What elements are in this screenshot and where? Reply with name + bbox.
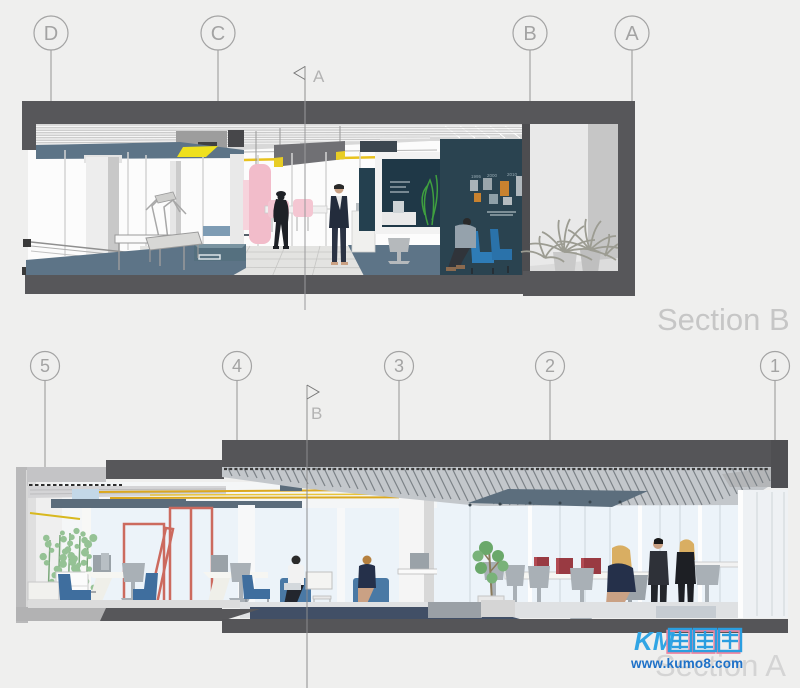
svg-text:C: C [211,23,225,45]
svg-text:www.kumo8.com: www.kumo8.com [630,656,743,671]
svg-text:3: 3 [394,356,404,376]
svg-text:D: D [44,23,58,45]
svg-text:A: A [625,23,639,45]
svg-text:1: 1 [770,356,780,376]
svg-text:A: A [313,67,325,86]
svg-text:5: 5 [40,356,50,376]
svg-text:Section B: Section B [657,302,790,337]
svg-text:2000: 2000 [487,173,498,178]
svg-text:B: B [311,404,322,423]
svg-text:2: 2 [545,356,555,376]
svg-text:4: 4 [232,356,242,376]
svg-text:B: B [523,23,536,45]
svg-text:1995: 1995 [471,174,482,179]
svg-text:2010: 2010 [507,172,518,177]
